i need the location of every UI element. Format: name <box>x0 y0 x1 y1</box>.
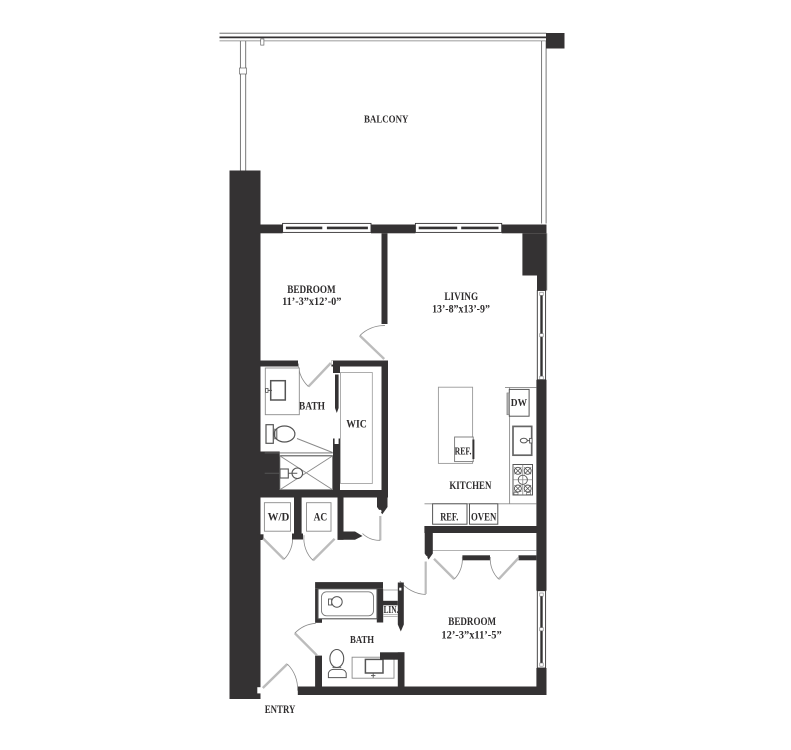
svg-text:13’-8”x13’-9”: 13’-8”x13’-9” <box>432 302 490 316</box>
svg-text:BALCONY: BALCONY <box>364 114 409 125</box>
svg-text:12’-3”x11’-5”: 12’-3”x11’-5” <box>441 629 502 641</box>
svg-text:W/D: W/D <box>268 510 290 524</box>
svg-text:KITCHEN: KITCHEN <box>449 480 492 492</box>
svg-text:BATH: BATH <box>350 634 374 646</box>
svg-text:BEDROOM: BEDROOM <box>448 616 496 628</box>
svg-text:OVEN: OVEN <box>471 512 497 524</box>
svg-text:BATH: BATH <box>299 400 325 412</box>
svg-text:LIN.: LIN. <box>384 605 399 616</box>
svg-text:AC: AC <box>314 510 328 524</box>
svg-text:ENTRY: ENTRY <box>265 704 296 716</box>
svg-text:REF.: REF. <box>455 445 472 457</box>
svg-text:DW: DW <box>511 397 527 409</box>
svg-text:WIC: WIC <box>346 418 367 430</box>
svg-text:BEDROOM: BEDROOM <box>287 284 336 296</box>
svg-text:REF.: REF. <box>440 512 458 524</box>
svg-text:11’-3”x12’-0”: 11’-3”x12’-0” <box>282 296 342 308</box>
